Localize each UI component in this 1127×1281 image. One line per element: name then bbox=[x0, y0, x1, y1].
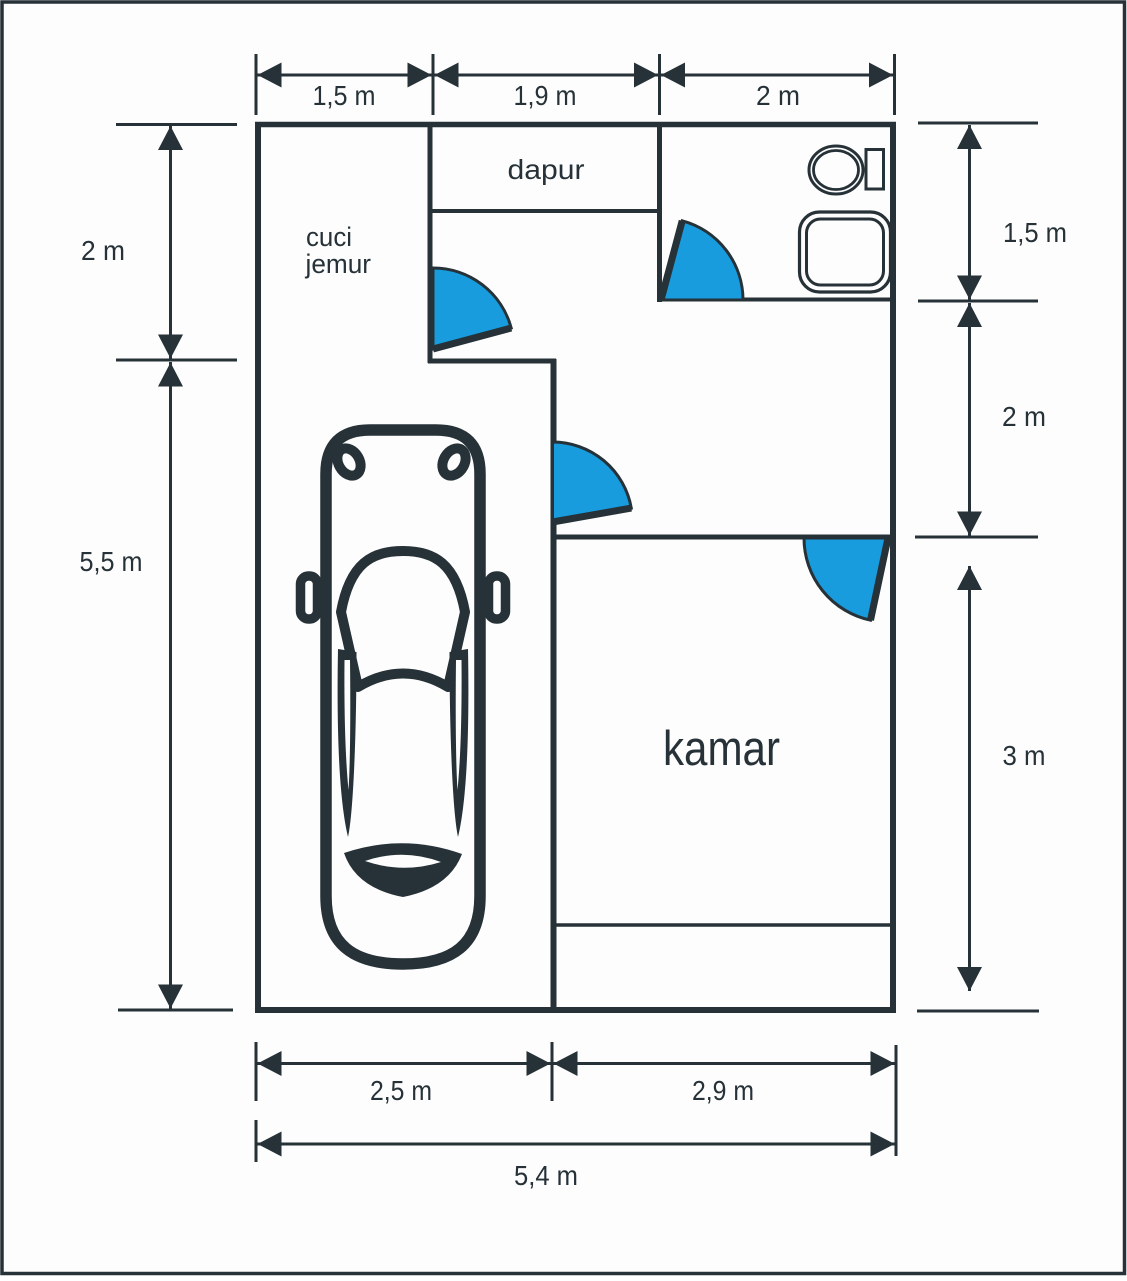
svg-text:2 m: 2 m bbox=[81, 235, 125, 266]
svg-text:1,9 m: 1,9 m bbox=[514, 80, 577, 111]
svg-text:5,4 m: 5,4 m bbox=[514, 1160, 578, 1191]
svg-text:2,5 m: 2,5 m bbox=[370, 1075, 432, 1106]
svg-text:2 m: 2 m bbox=[1002, 401, 1046, 432]
svg-text:1,5 m: 1,5 m bbox=[313, 80, 376, 111]
svg-text:kamar: kamar bbox=[663, 722, 780, 776]
svg-text:2 m: 2 m bbox=[756, 80, 800, 111]
svg-text:2,9 m: 2,9 m bbox=[692, 1075, 754, 1106]
svg-text:3 m: 3 m bbox=[1003, 740, 1046, 771]
svg-text:dapur: dapur bbox=[508, 154, 585, 185]
svg-text:cuci: cuci bbox=[306, 222, 352, 252]
svg-text:jemur: jemur bbox=[305, 249, 371, 279]
svg-text:5,5 m: 5,5 m bbox=[80, 546, 143, 577]
svg-text:1,5 m: 1,5 m bbox=[1003, 217, 1067, 248]
